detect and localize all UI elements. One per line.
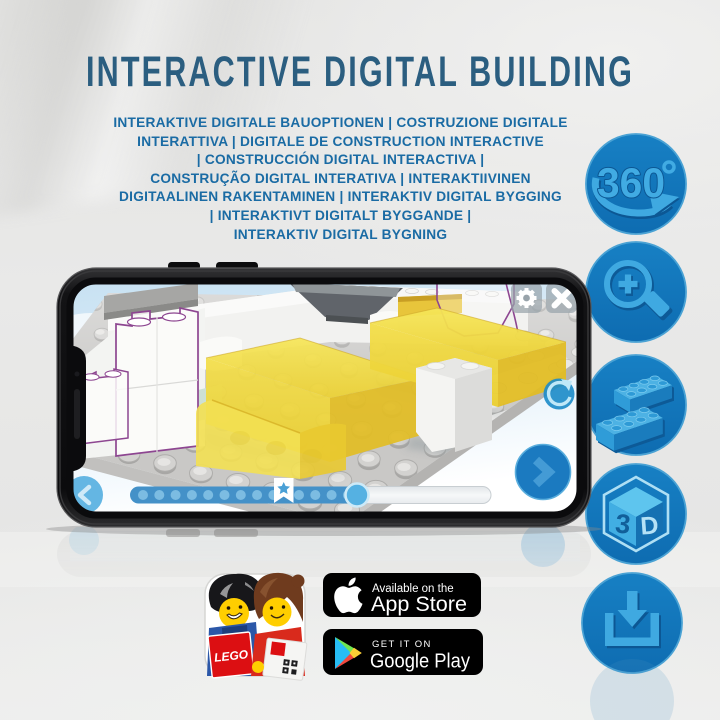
svg-text:INTERACTIVE DIGITAL BUILDING: INTERACTIVE DIGITAL BUILDING [86, 49, 634, 96]
svg-text:Google Play: Google Play [370, 650, 471, 673]
svg-text:3: 3 [614, 508, 632, 539]
svg-text:360: 360 [597, 159, 665, 206]
svg-text:GET IT ON: GET IT ON [372, 639, 432, 650]
svg-text:App Store: App Store [371, 592, 467, 616]
svg-text:D: D [639, 511, 659, 540]
